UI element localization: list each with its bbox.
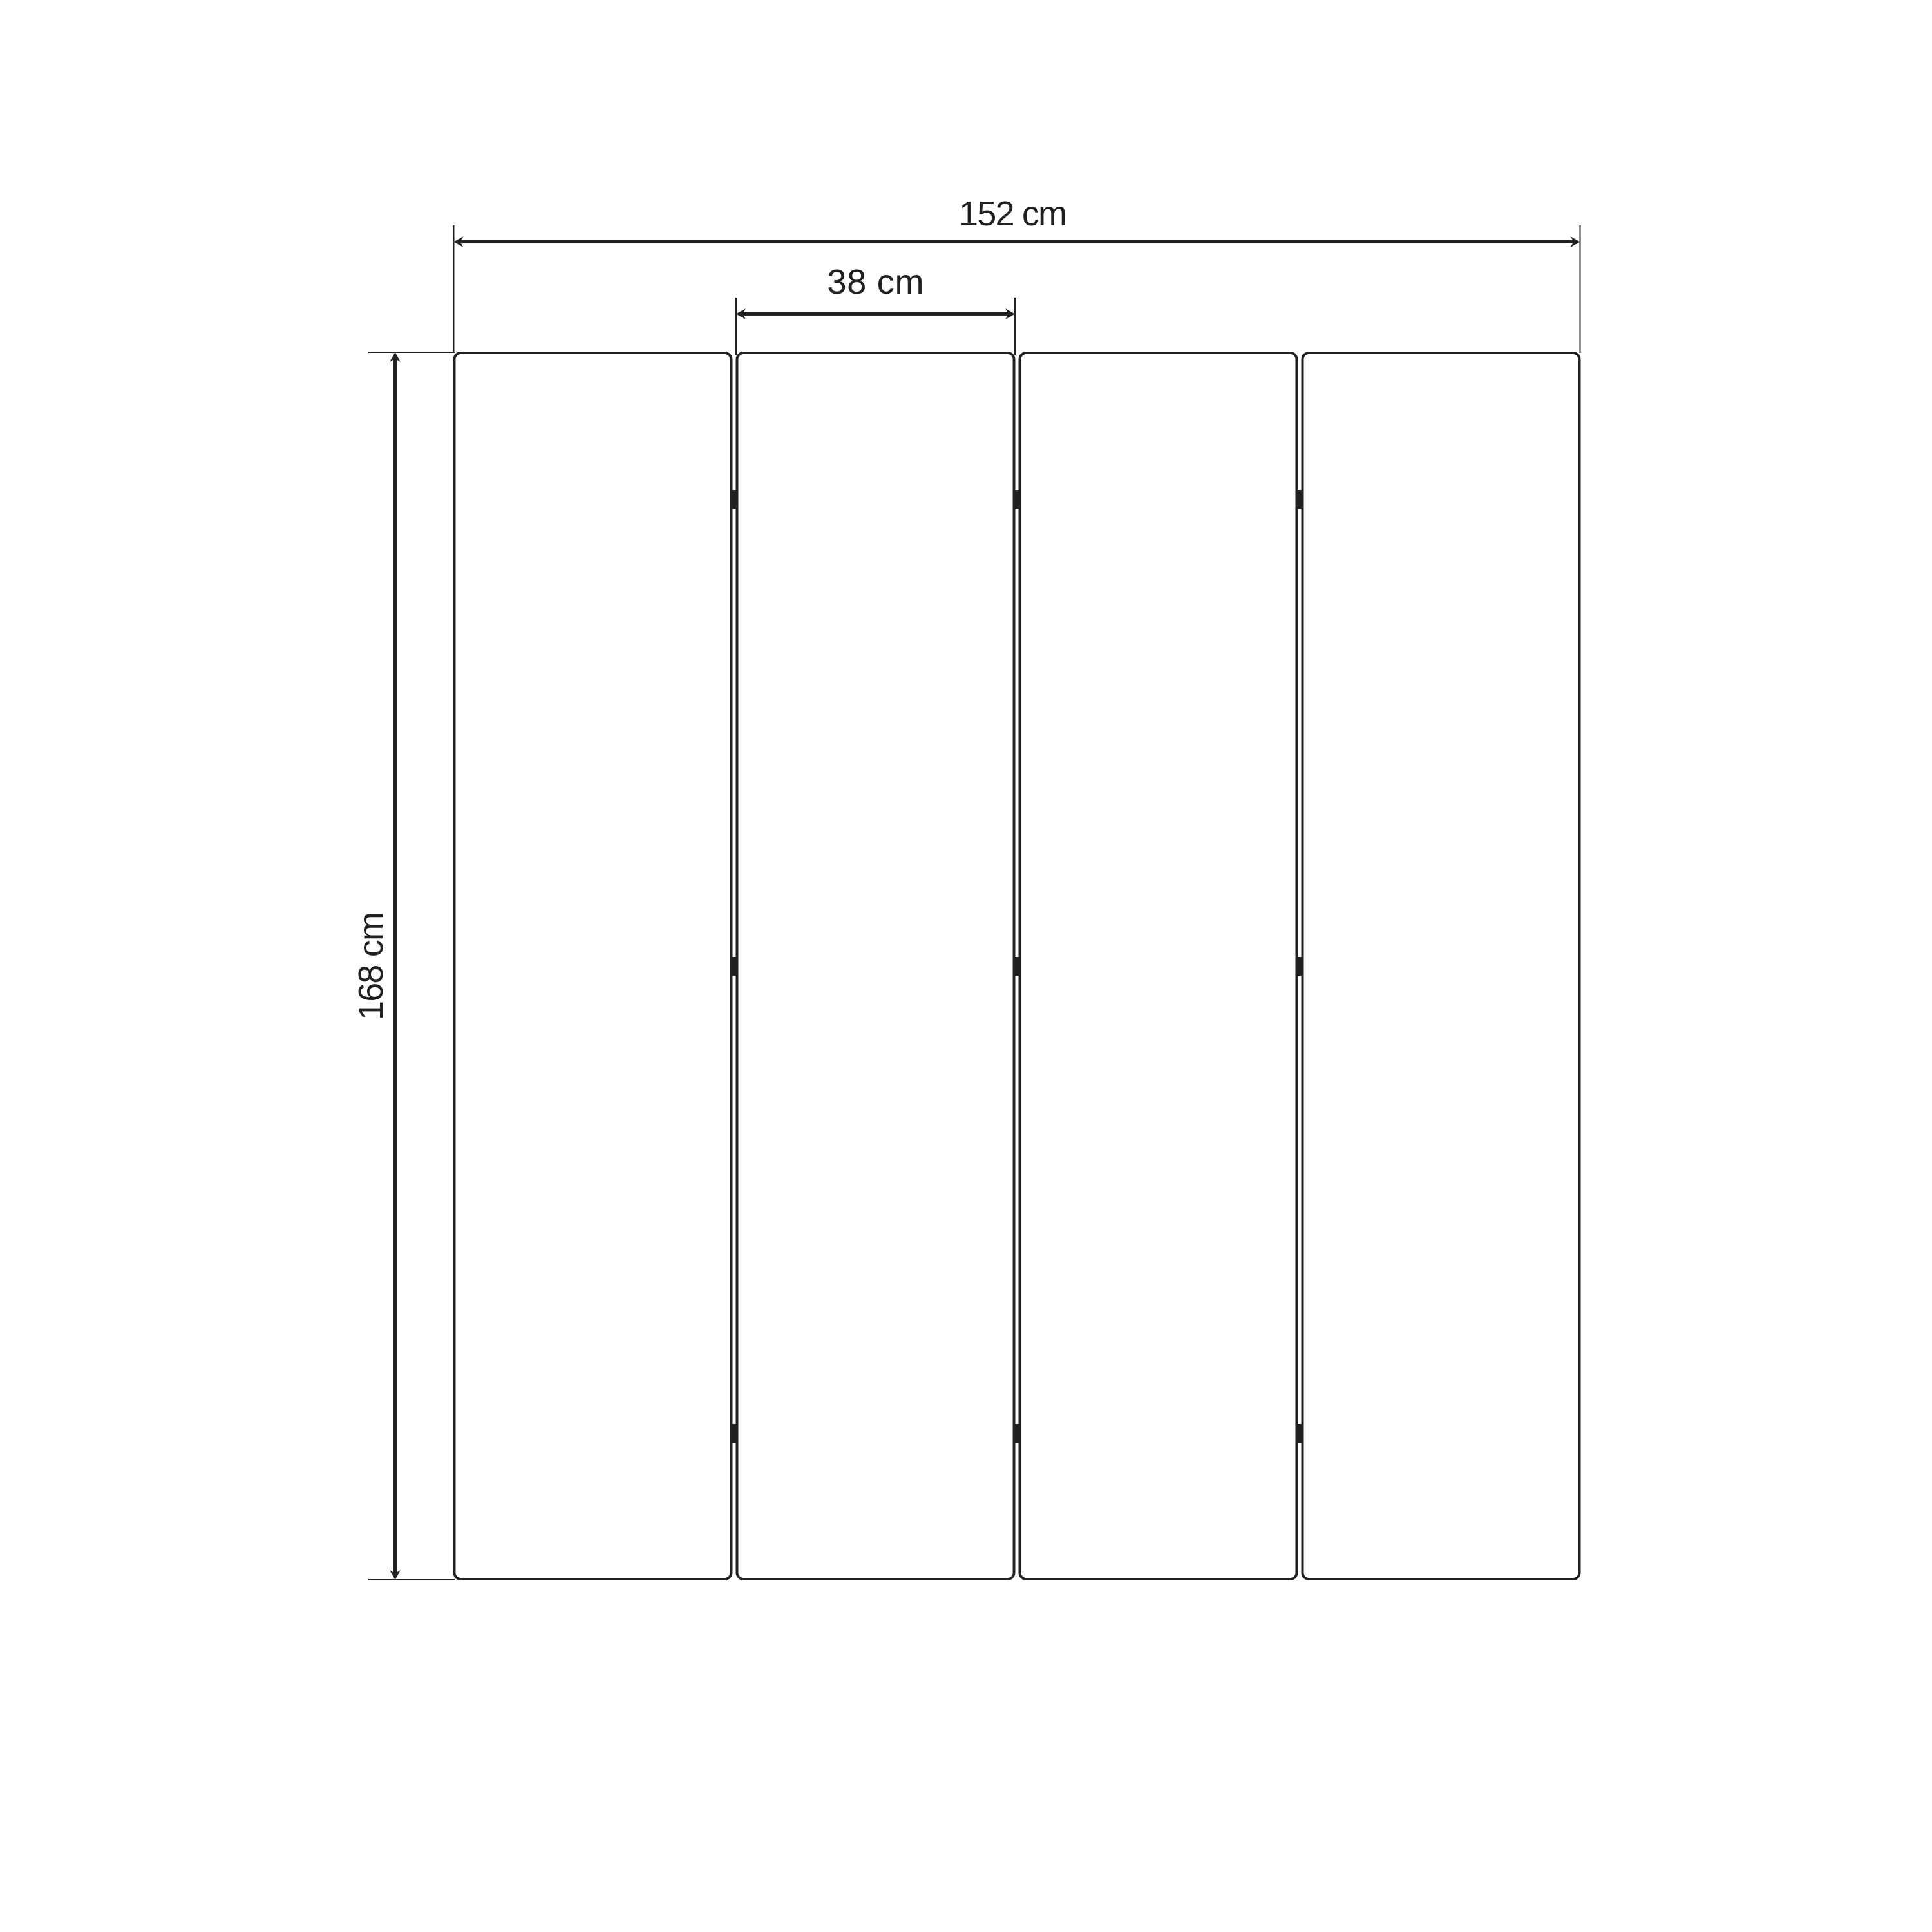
svg-text:152 cm: 152 cm [959,194,1067,233]
svg-text:38 cm: 38 cm [828,263,924,301]
svg-text:168 cm: 168 cm [352,912,390,1020]
